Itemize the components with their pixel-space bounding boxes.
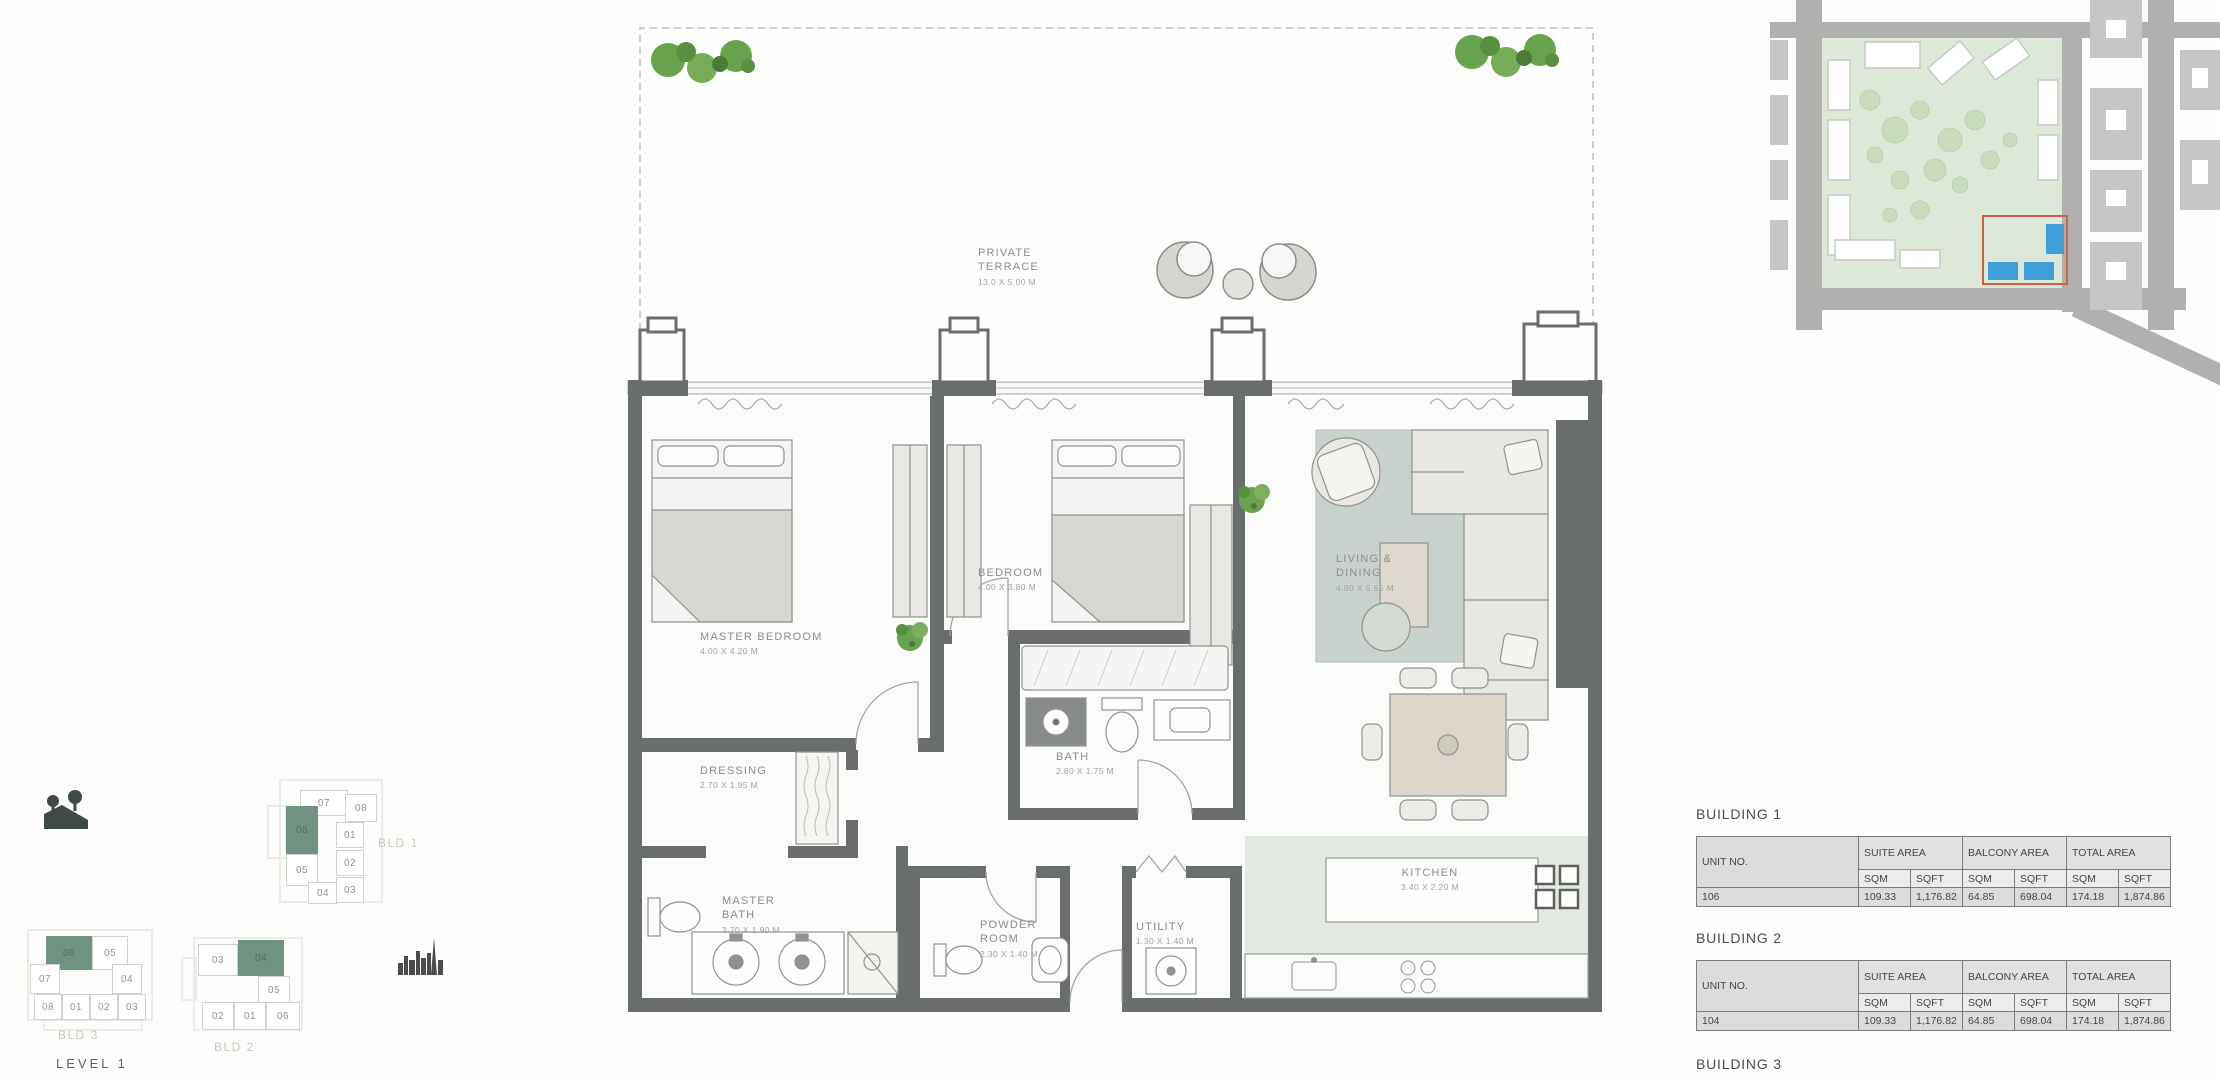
bld2-unit-03: 03 <box>198 944 238 976</box>
bld1-unit-08: 08 <box>345 794 377 822</box>
bld3-unit-02: 02 <box>90 994 118 1020</box>
bld3-label: BLD 3 <box>58 1028 99 1042</box>
unit-no-value: 106 <box>1697 888 1859 907</box>
room-dims: 1.30 X 1.40 M <box>1136 936 1216 947</box>
label-private-terrace: PRIVATE TERRACE 13.0 X 5.00 M <box>978 246 1062 288</box>
master-toilet <box>648 898 660 936</box>
bld2-unit-01: 01 <box>234 1002 266 1030</box>
powder-toilet <box>934 944 946 976</box>
col-total-area: TOTAL AREA <box>2067 837 2171 870</box>
total-sqm-value: 174.18 <box>2067 1012 2119 1031</box>
total-sqft-value: 1,874.86 <box>2119 888 2171 907</box>
bld1-unit-03: 03 <box>336 877 364 903</box>
col-sqm: SQM <box>1859 870 1911 888</box>
terrace-plants-left <box>651 40 755 83</box>
balcony-sqm-value: 64.85 <box>1963 1012 2015 1031</box>
kitchen-counter <box>1245 954 1588 998</box>
bld2-unit-05: 05 <box>258 976 290 1004</box>
room-dims: 4.00 X 4.20 M <box>700 646 870 657</box>
label-dressing: DRESSING 2.70 X 1.95 M <box>700 764 810 791</box>
label-kitchen: KITCHEN 3.40 X 2.20 M <box>1370 866 1490 893</box>
total-sqft-value: 1,874.86 <box>2119 1012 2171 1031</box>
col-sqft: SQFT <box>2119 994 2171 1012</box>
room-name: BATH <box>1056 750 1156 764</box>
room-dims: 4.80 X 5.65 M <box>1336 583 1412 594</box>
room-dims: 2.30 X 1.40 M <box>980 949 1050 960</box>
building2-table: UNIT NO. SUITE AREA BALCONY AREA TOTAL A… <box>1696 960 2171 1031</box>
col-sqft: SQFT <box>1911 870 1963 888</box>
room-dims: 4.00 X 3.80 M <box>978 582 1088 593</box>
level-title: LEVEL 1 <box>56 1056 128 1071</box>
scene <box>0 0 2220 1080</box>
col-sqm: SQM <box>1963 994 2015 1012</box>
bld1-unit-01: 01 <box>336 822 364 848</box>
room-dims: 2.70 X 1.95 M <box>700 780 810 791</box>
room-name: MASTER BEDROOM <box>700 630 870 644</box>
bld2-unit-02: 02 <box>202 1002 234 1030</box>
balcony-sqft-value: 698.04 <box>2015 888 2067 907</box>
window-strip <box>628 382 1602 394</box>
building2-title: BUILDING 2 <box>1696 930 1782 946</box>
room-name: UTILITY <box>1136 920 1216 934</box>
bld3-unit-07: 07 <box>30 964 60 994</box>
col-sqft: SQFT <box>2015 870 2067 888</box>
park-icon <box>44 790 88 829</box>
bathtub <box>1022 646 1228 690</box>
toilet <box>1102 698 1142 710</box>
bld2-unit-06: 06 <box>266 1002 300 1030</box>
terrace-pillars <box>640 312 1596 382</box>
bld3-unit-04: 04 <box>112 964 142 994</box>
suite-sqm-value: 109.33 <box>1859 1012 1911 1031</box>
room-dims: 3.40 X 2.20 M <box>1370 882 1490 893</box>
col-sqm: SQM <box>2067 870 2119 888</box>
guest-bed <box>1052 440 1184 622</box>
unit-no-value: 104 <box>1697 1012 1859 1031</box>
col-sqft: SQFT <box>2015 994 2067 1012</box>
col-suite-area: SUITE AREA <box>1859 837 1963 870</box>
armchair <box>1312 438 1380 506</box>
balcony-sqm-value: 64.85 <box>1963 888 2015 907</box>
table-row: 104 109.33 1,176.82 64.85 698.04 174.18 … <box>1697 1012 2171 1031</box>
col-sqm: SQM <box>2067 994 2119 1012</box>
bath-vanity <box>1154 700 1230 740</box>
bld2-unit-04-highlighted: 04 <box>238 940 284 976</box>
balcony-sqft-value: 698.04 <box>2015 1012 2067 1031</box>
building1-title: BUILDING 1 <box>1696 806 1782 822</box>
label-master-bedroom: MASTER BEDROOM 4.00 X 4.20 M <box>700 630 870 657</box>
side-table <box>1223 269 1253 299</box>
lounge-chairs <box>1157 242 1316 300</box>
col-sqft: SQFT <box>2119 870 2171 888</box>
table-row: 106 109.33 1,176.82 64.85 698.04 174.18 … <box>1697 888 2171 907</box>
bld3-unit-03: 03 <box>118 994 146 1020</box>
col-total-area: TOTAL AREA <box>2067 961 2171 994</box>
terrace-boundary <box>640 28 1593 390</box>
bld1-unit-06-highlighted: 06 <box>286 806 318 854</box>
skyline-icon <box>398 938 443 975</box>
building3-title: BUILDING 3 <box>1696 1056 1782 1072</box>
label-master-bath: MASTER BATH 3.70 X 1.90 M <box>722 894 786 936</box>
suite-sqft-value: 1,176.82 <box>1911 1012 1963 1031</box>
col-balcony-area: BALCONY AREA <box>1963 837 2067 870</box>
room-name: KITCHEN <box>1370 866 1490 880</box>
room-name: PRIVATE TERRACE <box>978 246 1062 275</box>
label-bath: BATH 2.80 X 1.75 M <box>1056 750 1156 777</box>
room-name: MASTER BATH <box>722 894 786 923</box>
suite-sqft-value: 1,176.82 <box>1911 888 1963 907</box>
col-sqm: SQM <box>1859 994 1911 1012</box>
room-dims: 3.70 X 1.90 M <box>722 925 786 936</box>
building1-table: UNIT NO. SUITE AREA BALCONY AREA TOTAL A… <box>1696 836 2171 907</box>
col-unit-no: UNIT NO. <box>1697 961 1859 1012</box>
room-dims: 13.0 X 5.00 M <box>978 277 1062 288</box>
bld1-unit-04: 04 <box>308 882 338 904</box>
room-name: DRESSING <box>700 764 810 778</box>
label-living-dining: LIVING & DINING 4.80 X 5.65 M <box>1336 552 1412 594</box>
total-sqm-value: 174.18 <box>2067 888 2119 907</box>
label-powder-room: POWDER ROOM 2.30 X 1.40 M <box>980 918 1050 960</box>
col-unit-no: UNIT NO. <box>1697 837 1859 888</box>
bld1-label: BLD 1 <box>378 836 419 850</box>
master-bed <box>652 440 792 622</box>
kitchen-area <box>1245 836 1588 998</box>
washer <box>1146 948 1196 994</box>
floor-plan <box>628 28 1602 1012</box>
site-map <box>1770 0 2220 388</box>
col-suite-area: SUITE AREA <box>1859 961 1963 994</box>
suite-sqm-value: 109.33 <box>1859 888 1911 907</box>
bld3-unit-08: 08 <box>34 994 62 1020</box>
floorplan-page: PRIVATE TERRACE 13.0 X 5.00 M MASTER BED… <box>0 0 2220 1080</box>
room-name: BEDROOM <box>978 566 1088 580</box>
terrace-plants-right <box>1455 34 1559 77</box>
label-bedroom: BEDROOM 4.00 X 3.80 M <box>978 566 1088 593</box>
room-name: POWDER ROOM <box>980 918 1050 947</box>
col-sqm: SQM <box>1963 870 2015 888</box>
bld1-unit-02: 02 <box>336 850 364 876</box>
col-balcony-area: BALCONY AREA <box>1963 961 2067 994</box>
room-name: LIVING & DINING <box>1336 552 1412 581</box>
bld3-unit-01: 01 <box>62 994 90 1020</box>
bld2-label: BLD 2 <box>214 1040 255 1054</box>
room-dims: 2.80 X 1.75 M <box>1056 766 1156 777</box>
col-sqft: SQFT <box>1911 994 1963 1012</box>
label-utility: UTILITY 1.30 X 1.40 M <box>1136 920 1216 947</box>
